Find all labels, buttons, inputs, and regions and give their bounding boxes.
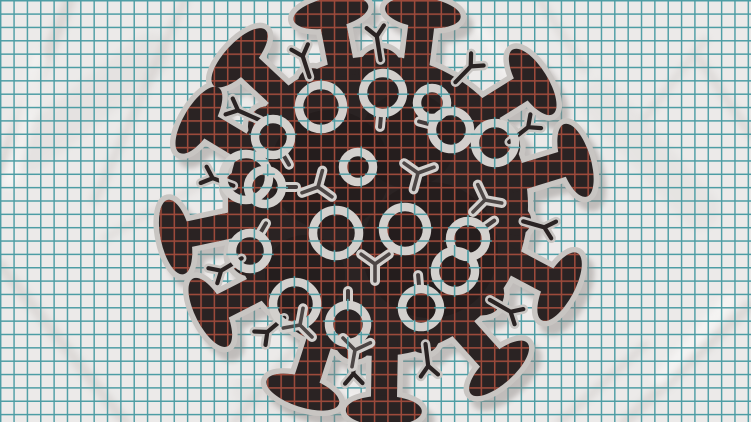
protein-keyhole-stem-core <box>418 275 419 286</box>
virus-illustration <box>0 0 751 422</box>
illustration-canvas <box>0 0 751 422</box>
protein-keyhole-stem-core <box>380 116 381 127</box>
